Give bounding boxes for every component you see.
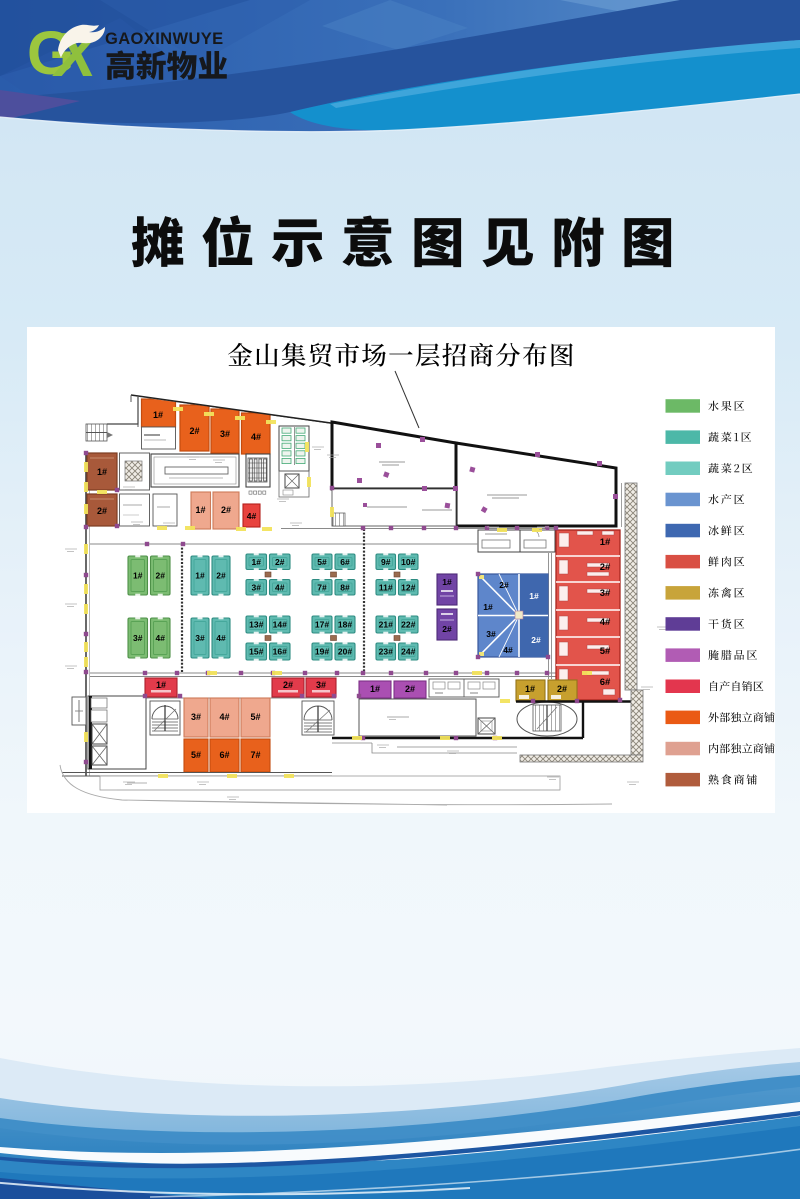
- svg-text:1#: 1#: [370, 684, 380, 694]
- svg-text:12#: 12#: [401, 582, 415, 592]
- svg-text:1#: 1#: [525, 684, 535, 694]
- svg-text:4#: 4#: [156, 633, 166, 643]
- svg-text:4#: 4#: [216, 633, 226, 643]
- svg-text:2#: 2#: [499, 580, 509, 590]
- svg-text:6#: 6#: [219, 750, 229, 760]
- svg-text:3#: 3#: [133, 633, 143, 643]
- svg-text:7#: 7#: [250, 750, 260, 760]
- svg-text:1#: 1#: [156, 680, 166, 690]
- svg-text:8#: 8#: [340, 582, 350, 592]
- svg-text:11#: 11#: [379, 582, 393, 592]
- svg-text:4#: 4#: [503, 645, 513, 655]
- svg-text:2#: 2#: [600, 562, 611, 573]
- svg-text:14#: 14#: [273, 620, 287, 630]
- svg-text:13#: 13#: [249, 620, 263, 630]
- svg-text:6#: 6#: [600, 677, 611, 688]
- svg-text:2#: 2#: [442, 624, 452, 634]
- svg-text:3#: 3#: [195, 633, 205, 643]
- svg-text:2#: 2#: [531, 635, 541, 645]
- svg-text:4#: 4#: [219, 712, 229, 722]
- svg-text:1#: 1#: [600, 537, 611, 548]
- svg-text:2#: 2#: [216, 571, 226, 581]
- svg-text:3#: 3#: [191, 712, 201, 722]
- svg-text:3#: 3#: [600, 588, 611, 599]
- svg-text:19#: 19#: [315, 647, 329, 657]
- svg-text:1#: 1#: [529, 591, 539, 601]
- svg-text:2#: 2#: [221, 505, 231, 515]
- svg-text:5#: 5#: [600, 646, 611, 657]
- svg-text:2#: 2#: [283, 680, 293, 690]
- svg-text:2#: 2#: [156, 571, 166, 581]
- svg-text:2#: 2#: [275, 557, 285, 567]
- svg-text:4#: 4#: [275, 582, 285, 592]
- svg-text:2#: 2#: [405, 684, 415, 694]
- svg-text:6#: 6#: [340, 557, 350, 567]
- svg-text:3#: 3#: [252, 582, 262, 592]
- svg-text:5#: 5#: [191, 750, 201, 760]
- svg-text:2#: 2#: [557, 684, 567, 694]
- svg-text:23#: 23#: [379, 647, 393, 657]
- svg-text:4#: 4#: [247, 511, 257, 521]
- svg-text:22#: 22#: [401, 620, 415, 630]
- svg-text:9#: 9#: [381, 557, 391, 567]
- svg-text:24#: 24#: [401, 647, 415, 657]
- svg-text:10#: 10#: [401, 557, 415, 567]
- svg-text:17#: 17#: [315, 620, 329, 630]
- svg-text:7#: 7#: [317, 582, 327, 592]
- svg-text:15#: 15#: [249, 647, 263, 657]
- svg-text:16#: 16#: [273, 647, 287, 657]
- svg-text:3#: 3#: [316, 680, 326, 690]
- svg-text:20#: 20#: [338, 647, 352, 657]
- svg-text:3#: 3#: [220, 429, 230, 439]
- svg-text:18#: 18#: [338, 620, 352, 630]
- svg-text:2#: 2#: [97, 506, 107, 516]
- svg-text:1#: 1#: [442, 577, 452, 587]
- svg-text:5#: 5#: [250, 712, 260, 722]
- svg-text:1#: 1#: [483, 602, 493, 612]
- svg-text:4#: 4#: [600, 617, 611, 628]
- svg-text:5#: 5#: [317, 557, 327, 567]
- svg-text:1#: 1#: [133, 571, 143, 581]
- svg-text:1#: 1#: [195, 505, 205, 515]
- svg-text:2#: 2#: [189, 426, 199, 436]
- svg-text:4#: 4#: [251, 432, 261, 442]
- svg-text:GAOXINWUYE: GAOXINWUYE: [105, 30, 224, 48]
- svg-text:21#: 21#: [379, 620, 393, 630]
- svg-text:1#: 1#: [252, 557, 262, 567]
- svg-text:1#: 1#: [195, 571, 205, 581]
- svg-text:1#: 1#: [97, 467, 107, 477]
- svg-text:1#: 1#: [153, 410, 163, 420]
- svg-text:3#: 3#: [486, 629, 496, 639]
